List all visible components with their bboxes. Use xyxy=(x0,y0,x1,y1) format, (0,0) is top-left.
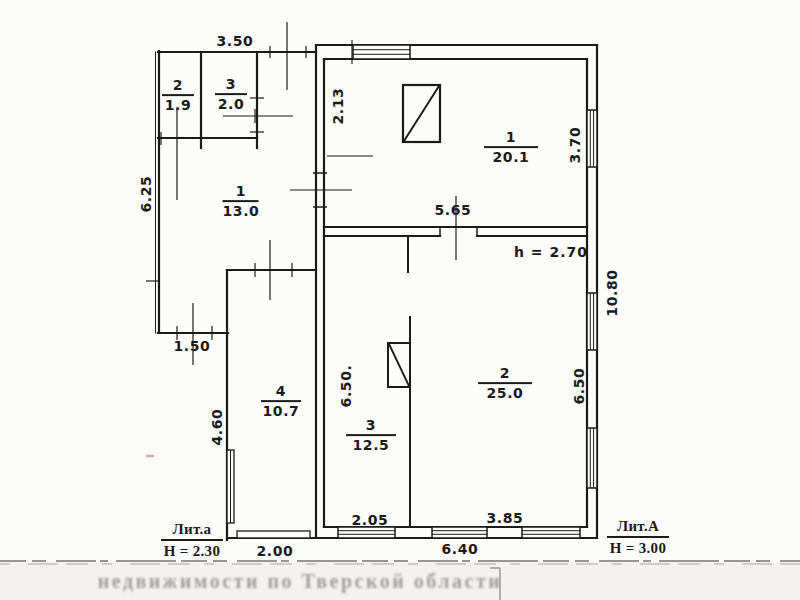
room-area: 20.1 xyxy=(484,149,538,166)
room-area: 1.9 xyxy=(162,97,194,114)
annex-walls xyxy=(156,51,317,540)
ceiling-height-note: h = 2.70 xyxy=(514,244,588,260)
window-room4-left-icon xyxy=(227,450,234,523)
sill-room4-bottom-icon xyxy=(237,531,310,538)
room-label-4: 4 10.7 xyxy=(261,384,301,420)
window-top-icon xyxy=(353,45,410,59)
dim-6-25: 6.25 xyxy=(138,176,154,213)
litera-label: Лит.а xyxy=(161,521,223,541)
window-bottom-2-icon xyxy=(432,527,487,538)
stamp-text: недвижимости по Тверской области xyxy=(98,570,502,593)
litera-a-big: Лит.А Н = 3.00 xyxy=(607,518,669,556)
dim-2-00: 2.00 xyxy=(257,543,294,559)
dim-3-50: 3.50 xyxy=(217,33,254,49)
room-area: 25.0 xyxy=(478,385,532,402)
window-right-middle-icon xyxy=(587,293,597,350)
window-right-lower-icon xyxy=(587,428,597,488)
dim-6-40: 6.40 xyxy=(442,541,479,557)
dim-2-13: 2.13 xyxy=(330,88,346,125)
room-number: 1 xyxy=(484,130,538,148)
room-number: 3 xyxy=(346,418,396,436)
dim-3-70: 3.70 xyxy=(567,127,583,164)
dim-5-65: 5.65 xyxy=(435,202,472,218)
window-right-upper-icon xyxy=(587,110,597,167)
room-number: 1 xyxy=(223,184,259,202)
dim-3-85: 3.85 xyxy=(487,510,524,526)
room-area: 10.7 xyxy=(261,403,301,420)
litera-label: Лит.А xyxy=(607,518,669,538)
room-number: 3 xyxy=(215,77,247,95)
room-label-annex-2: 2 1.9 xyxy=(162,78,194,114)
floorplan-linework xyxy=(0,0,800,600)
room-label-main-2: 2 25.0 xyxy=(478,366,532,402)
measure-ticks xyxy=(146,22,456,365)
dim-6-50-left: 6.50. xyxy=(338,365,354,408)
room-label-annex-3: 3 2.0 xyxy=(215,77,247,113)
litera-a-small: Лит.а Н = 2.30 xyxy=(161,521,223,559)
room-label-main-3: 3 12.5 xyxy=(346,418,396,454)
dim-1-50: 1.50 xyxy=(174,338,211,354)
room-number: 4 xyxy=(261,384,301,402)
window-bottom-3-icon xyxy=(522,527,580,538)
floor-plan-page: 3.50 6.25 2.13 3.70 5.65 10.80 6.50. 6.5… xyxy=(0,0,800,600)
room-number: 2 xyxy=(478,366,532,384)
room-label-annex-1: 1 13.0 xyxy=(223,184,260,220)
room-area: 12.5 xyxy=(346,437,396,454)
litera-height: Н = 3.00 xyxy=(607,538,669,557)
room-label-main-1: 1 20.1 xyxy=(484,130,538,166)
dim-10-80: 10.80 xyxy=(604,269,620,316)
room-area: 13.0 xyxy=(223,203,260,220)
dim-2-05: 2.05 xyxy=(352,512,389,528)
window-bottom-1-icon xyxy=(338,527,395,538)
litera-height: Н = 2.30 xyxy=(161,541,223,560)
room-number: 2 xyxy=(162,78,194,96)
dim-4-60: 4.60 xyxy=(209,409,225,446)
room-area: 2.0 xyxy=(215,96,247,113)
dim-6-50-right: 6.50 xyxy=(571,368,587,405)
